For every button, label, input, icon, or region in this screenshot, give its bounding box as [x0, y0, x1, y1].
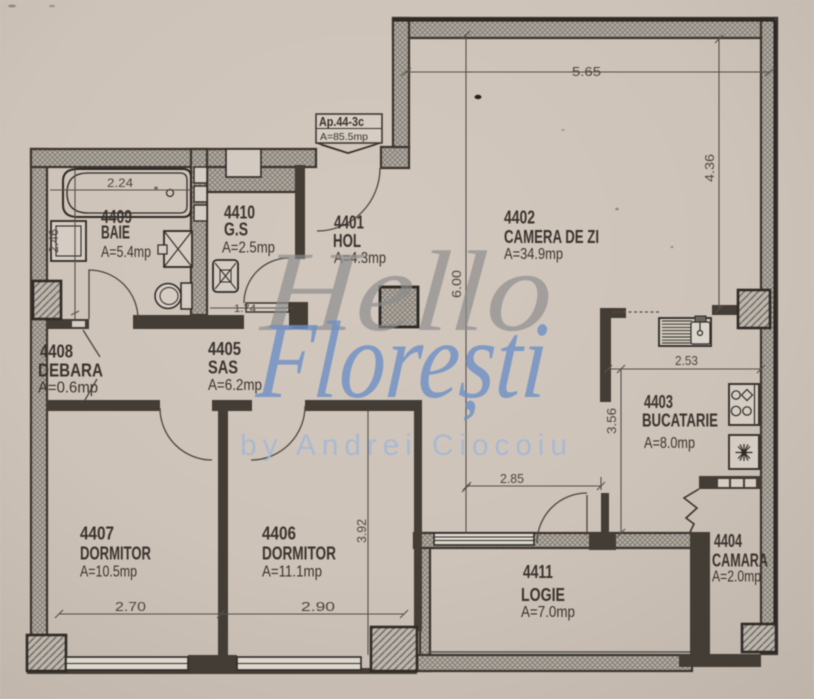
svg-text:A=10.5mp: A=10.5mp	[80, 564, 137, 581]
svg-text:A=8.0mp: A=8.0mp	[644, 435, 695, 452]
svg-text:A=6.2mp: A=6.2mp	[208, 377, 262, 394]
svg-text:Ap.44-3c: Ap.44-3c	[319, 115, 364, 129]
svg-text:DORMITOR: DORMITOR	[262, 544, 336, 564]
svg-text:4405: 4405	[208, 339, 241, 359]
svg-text:2.53: 2.53	[675, 353, 698, 368]
svg-text:4411: 4411	[523, 562, 553, 582]
svg-text:A=85.5mp: A=85.5mp	[320, 131, 368, 143]
svg-text:3.56: 3.56	[604, 408, 619, 434]
svg-text:A=0.6mp: A=0.6mp	[38, 380, 98, 397]
svg-text:by Andrei Ciocoiu: by Andrei Ciocoiu	[240, 429, 576, 462]
svg-text:BUCATARIE: BUCATARIE	[642, 411, 718, 431]
svg-text:4406: 4406	[262, 524, 296, 544]
svg-text:4407: 4407	[80, 524, 114, 544]
svg-text:BAIE: BAIE	[101, 223, 130, 243]
svg-text:A=5.4mp: A=5.4mp	[101, 244, 151, 261]
svg-text:2.70: 2.70	[115, 599, 146, 614]
svg-text:4404: 4404	[714, 531, 742, 551]
svg-text:Florești: Florești	[253, 299, 552, 421]
svg-text:DEBARA: DEBARA	[38, 361, 103, 381]
svg-text:1.74: 1.74	[234, 303, 256, 315]
svg-text:5.65: 5.65	[572, 64, 601, 79]
svg-text:G.S: G.S	[224, 220, 248, 240]
svg-text:A=2.0mp: A=2.0mp	[712, 569, 761, 586]
svg-text:LOGIE: LOGIE	[521, 585, 565, 605]
svg-text:SAS: SAS	[208, 358, 238, 378]
svg-text:3.92: 3.92	[354, 519, 369, 543]
svg-text:A=7.0mp: A=7.0mp	[521, 604, 575, 621]
svg-text:2.24: 2.24	[107, 176, 133, 190]
svg-text:DORMITOR: DORMITOR	[80, 544, 151, 564]
svg-text:2.90: 2.90	[301, 599, 335, 614]
svg-text:CAMARA: CAMARA	[712, 551, 768, 571]
svg-text:4402: 4402	[504, 208, 535, 228]
svg-text:A=11.1mp: A=11.1mp	[262, 564, 322, 581]
svg-text:4408: 4408	[40, 342, 73, 362]
svg-text:4.36: 4.36	[702, 154, 717, 182]
svg-text:4403: 4403	[644, 392, 673, 412]
svg-text:2.85: 2.85	[500, 471, 524, 486]
svg-text:2.46: 2.46	[46, 229, 61, 253]
